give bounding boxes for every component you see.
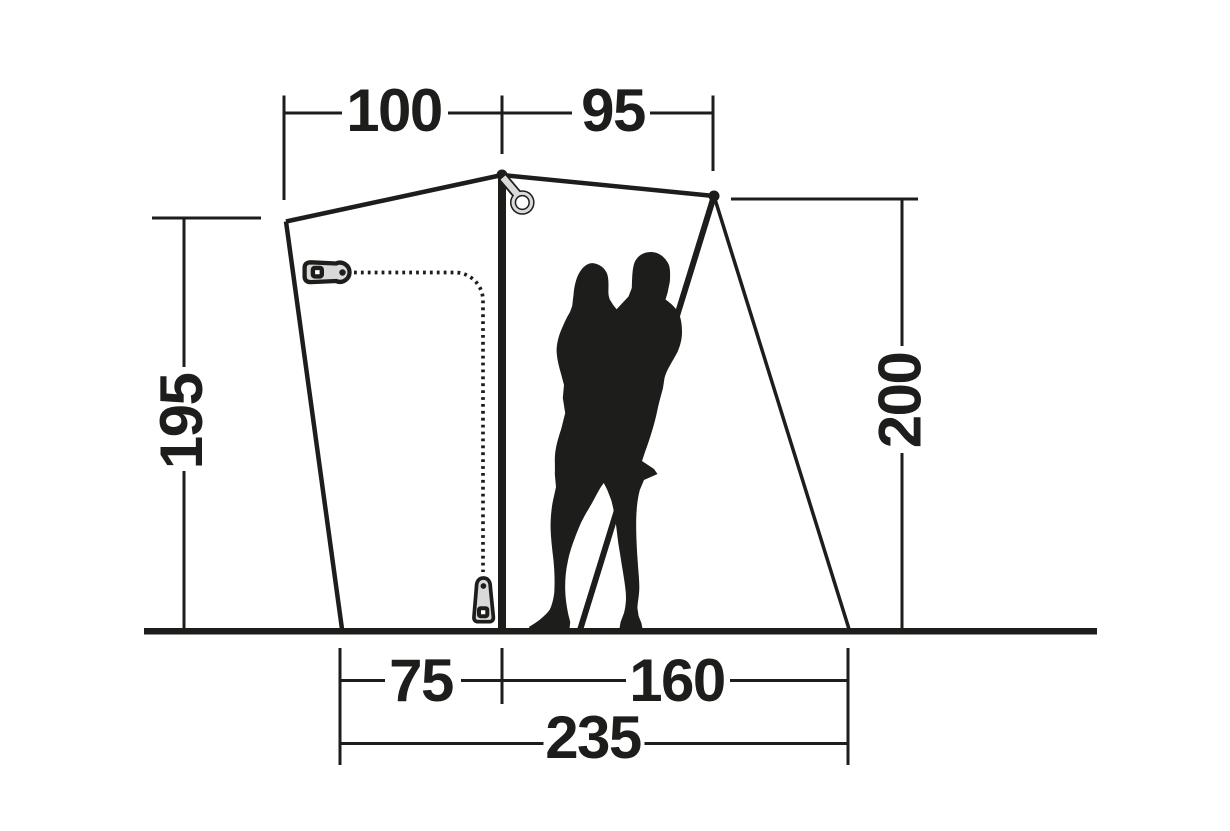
svg-text:235: 235: [545, 704, 641, 771]
svg-text:95: 95: [581, 77, 645, 144]
svg-text:100: 100: [346, 77, 442, 144]
svg-text:195: 195: [148, 374, 215, 470]
svg-text:75: 75: [389, 647, 453, 714]
svg-text:160: 160: [629, 647, 725, 714]
svg-text:200: 200: [867, 353, 934, 449]
